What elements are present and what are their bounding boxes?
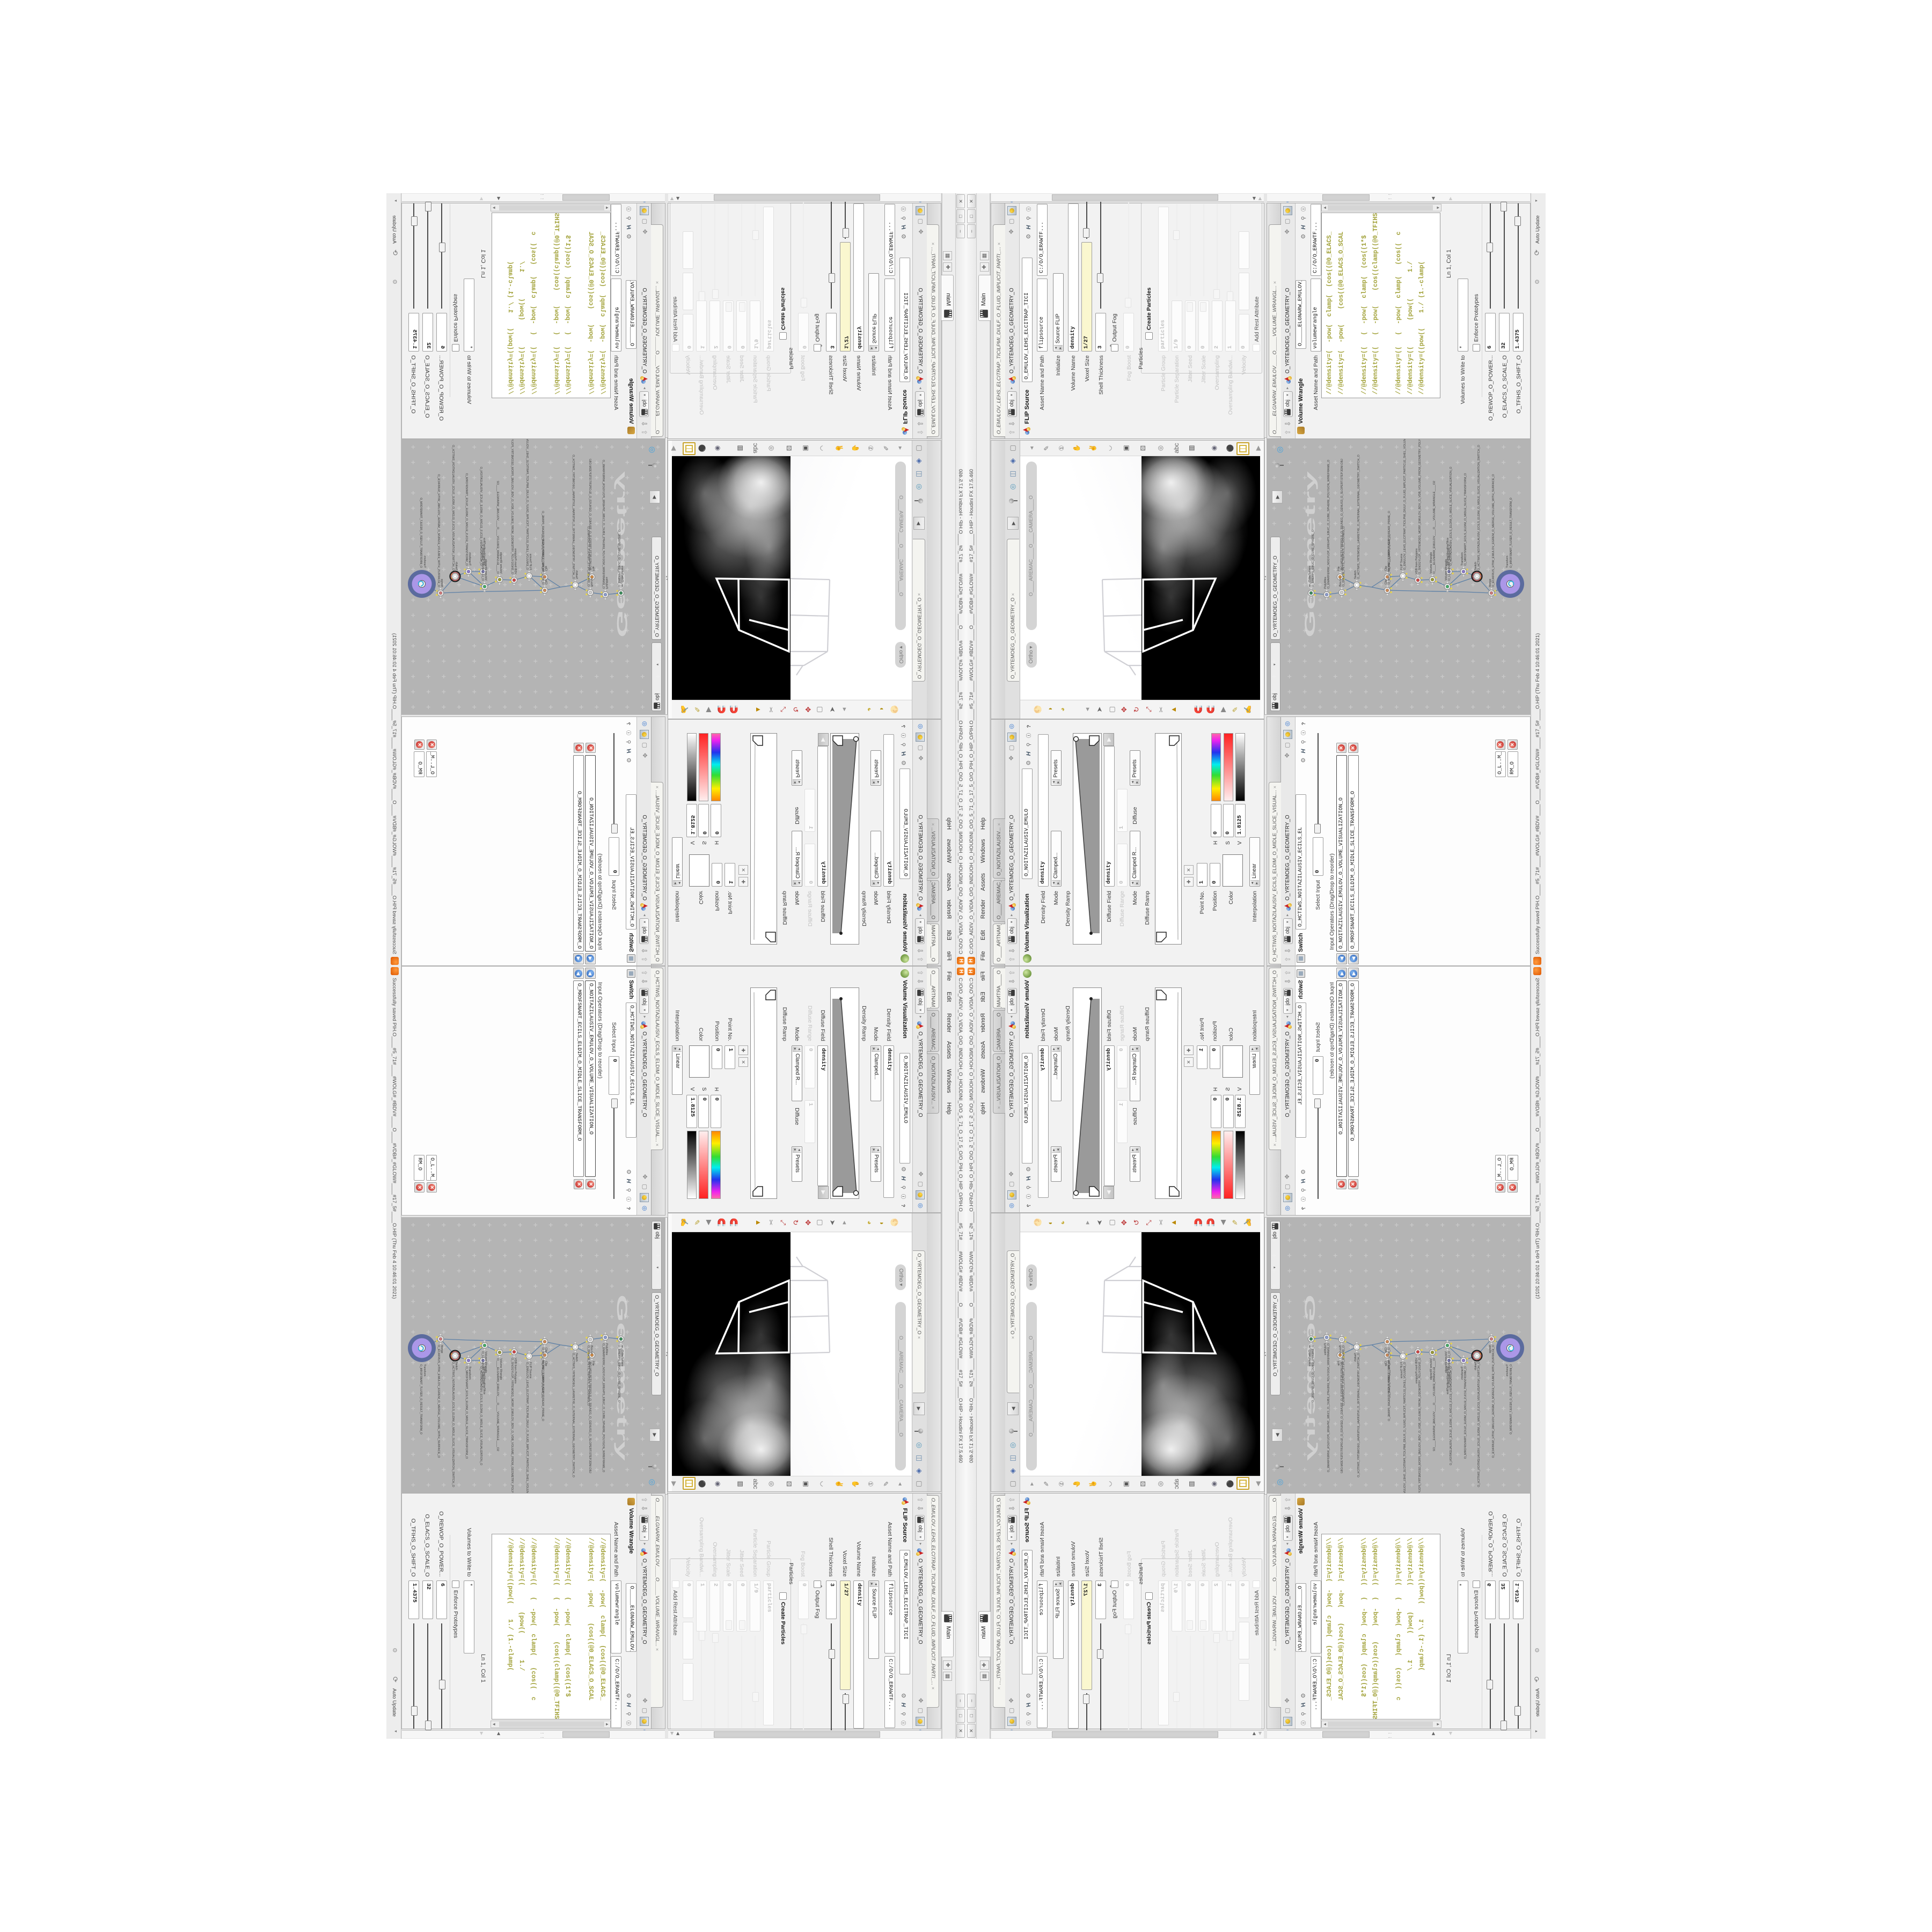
svg-text:O_ELGNARW_EMULOV_2: O_ELGNARW_EMULOV_2 [1448, 545, 1451, 581]
svg-text:O____ELGNARW_EMULOV____O____VO: O____ELGNARW_EMULOV____O____VOLUME_WRANG… [1433, 481, 1436, 574]
svg-text:O_ECAFRUS_HTIW_EMULOV_EGREM_O_: O_ECAFRUS_HTIW_EMULOV_EGREM_O_MERGE_VOLU… [437, 474, 440, 587]
svg-text:O_DNUOB_PETS_TIEPOLS_O_SOUNEG_: O_DNUOB_PETS_TIEPOLS_O_SOUNEG_O [587, 526, 590, 587]
svg-text:O_HCTIWS_NOITAZILAUSIV_ECILS_E: O_HCTIWS_NOITAZILAUSIV_ECILS_ELDIM_O_MID… [451, 444, 455, 570]
svg-text:O_EMULOV_LEHS_ELCITRAP_TICILPM: O_EMULOV_LEHS_ELCITRAP_TICILPMI_DIULF_O_… [525, 437, 529, 570]
svg-text:Geometry: Geometry [614, 1294, 630, 1461]
svg-text:O_EMULOV_LEHS_ELCITRAP_TICILPM: O_EMULOV_LEHS_ELCITRAP_TICILPMI_DIULF_O_… [1403, 437, 1407, 570]
svg-text:Geometry: Geometry [614, 471, 630, 638]
svg-text:O_SNOGYLOP_YRTEMOEG_MORF_EMULO: O_SNOGYLOP_YRTEMOEG_MORF_EMULOV_BDV_O_VD… [1418, 437, 1422, 574]
svg-text:O_PILC_TNORF_O_FRONT_CLIP_O: O_PILC_TNORF_O_FRONT_CLIP_O [541, 534, 544, 584]
svg-text:O_HCTIWS_YRTEMOEG_LANRETXE_O_I: O_HCTIWS_YRTEMOEG_LANRETXE_O_INTERNAL_EX… [1357, 1353, 1360, 1477]
svg-text:O_EMARFERIW_NOGYLOP_EREHPS_EBU: O_EMARFERIW_NOGYLOP_EREHPS_EBUC_O_CUBE_S… [602, 1343, 605, 1473]
svg-text:O_ECAFRUS_HTIW_EMULOV_EGREM_O_: O_ECAFRUS_HTIW_EMULOV_EGREM_O_MERGE_VOLU… [1492, 1345, 1495, 1458]
svg-text:O_PILC_TNORF_O_FRONT_CLIP_O: O_PILC_TNORF_O_FRONT_CLIP_O [1388, 534, 1391, 584]
svg-text:O_HCTIWS_NOITAZILAUSIV_ECILS_E: O_HCTIWS_NOITAZILAUSIV_ECILS_ELDIM_O_MID… [451, 1362, 455, 1488]
svg-text:O_DNUOB_PETS_TIEPOLS_O_SOUNEG_: O_DNUOB_PETS_TIEPOLS_O_SOUNEG_O [1342, 526, 1345, 587]
svg-text:O_EMARFERIW_NOGYLOP_EREHPS_EBU: O_EMARFERIW_NOGYLOP_EREHPS_EBUC_O_CUBE_S… [1327, 1343, 1330, 1473]
svg-text:O_MROFSNART_ECILS_ELDIM_O_MIDL: O_MROFSNART_ECILS_ELDIM_O_MIDLE_SLICE_TR… [1464, 1366, 1467, 1459]
svg-text:O_ECAFRUS_HTIW_EMULOV_EGREM_O_: O_ECAFRUS_HTIW_EMULOV_EGREM_O_MERGE_VOLU… [437, 1345, 440, 1458]
svg-text:O_MROFSNART_TLUSER_O_RESULT_TR: O_MROFSNART_TLUSER_O_RESULT_TRANSFORM_O [1510, 497, 1513, 568]
svg-text:Transform: Transform [1506, 1364, 1509, 1377]
svg-text:O____ELGNARW_EMULOV____O____VO: O____ELGNARW_EMULOV____O____VOLUME_WRANG… [1433, 1358, 1436, 1451]
svg-text:O____ELGNARW_EMULOV____O____VO: O____ELGNARW_EMULOV____O____VOLUME_WRANG… [496, 1358, 499, 1451]
svg-text:O_HCTIWS_NOITAZILAUSIV_ECILS_E: O_HCTIWS_NOITAZILAUSIV_ECILS_ELDIM_O_MID… [1477, 444, 1481, 570]
svg-text:Transform: Transform [423, 1364, 426, 1377]
svg-text:O_EREHPS_EBUC_O_CUBE_SPHERE_O: O_EREHPS_EBUC_O_CUBE_SPHERE_O [617, 529, 620, 587]
svg-text:O_SNOGYLOP_YRTEMOEG_MORF_EMULO: O_SNOGYLOP_YRTEMOEG_MORF_EMULOV_BDV_O_VD… [510, 437, 514, 574]
svg-text:O_EMULOV_LEHS_ELCITRAP_TICILPM: O_EMULOV_LEHS_ELCITRAP_TICILPMI_DIULF_O_… [1403, 1362, 1407, 1495]
svg-text:O_ELGNARW_EMULOV_2: O_ELGNARW_EMULOV_2 [481, 545, 484, 581]
svg-text:Transform: Transform [1506, 555, 1509, 568]
svg-text:O_EREHPS_EBUC_O_CUBE_SPHERE_O: O_EREHPS_EBUC_O_CUBE_SPHERE_O [1312, 1345, 1315, 1403]
svg-text:O_ELGNARW_EMULOV_2: O_ELGNARW_EMULOV_2 [481, 1351, 484, 1387]
svg-text:O_MROFSNART_ECILS_ELDIM_O_MIDL: O_MROFSNART_ECILS_ELDIM_O_MIDLE_SLICE_TR… [1464, 473, 1467, 566]
svg-text:O_MROFSNART_TLUSER_O_RESULT_TR: O_MROFSNART_TLUSER_O_RESULT_TRANSFORM_O [1510, 1364, 1513, 1435]
svg-text:O_PILC_TNORF_O_FRONT_CLIP_O: O_PILC_TNORF_O_FRONT_CLIP_O [541, 1348, 544, 1398]
svg-text:O_EREHPS_EBUC_O_CUBE_SPHERE_O: O_EREHPS_EBUC_O_CUBE_SPHERE_O [617, 1345, 620, 1403]
svg-text:Geometry: Geometry [1302, 1294, 1318, 1461]
svg-text:O_EMARFERIW_NOGYLOP_EREHPS_EBU: O_EMARFERIW_NOGYLOP_EREHPS_EBUC_O_CUBE_S… [1327, 459, 1330, 589]
svg-text:O_DNUOB_PETS_TIEPOLS_O_SOUNEG_: O_DNUOB_PETS_TIEPOLS_O_SOUNEG_O [587, 1345, 590, 1406]
svg-text:O_ECAFRUS_HTIW_EMULOV_EGREM_O_: O_ECAFRUS_HTIW_EMULOV_EGREM_O_MERGE_VOLU… [1492, 474, 1495, 587]
svg-text:O_EMARFERIW_NOGYLOP_EREHPS_EBU: O_EMARFERIW_NOGYLOP_EREHPS_EBUC_O_CUBE_S… [602, 459, 605, 589]
svg-text:O_SNOGYLOP_YRTEMOEG_MORF_EMULO: O_SNOGYLOP_YRTEMOEG_MORF_EMULOV_BDV_O_VD… [1418, 1358, 1422, 1495]
svg-text:O_ELGNARW_EMULOV_2: O_ELGNARW_EMULOV_2 [1448, 1351, 1451, 1387]
svg-text:O_HCTIWS_NOITAZILAUSIV_ECILS_E: O_HCTIWS_NOITAZILAUSIV_ECILS_ELDIM_O_MID… [1477, 1362, 1481, 1488]
svg-text:O_EREHPS_EBUC_O_CUBE_SPHERE_O: O_EREHPS_EBUC_O_CUBE_SPHERE_O [1312, 529, 1315, 587]
svg-text:O_HCTIWS_YRTEMOEG_LANRETXE_O_I: O_HCTIWS_YRTEMOEG_LANRETXE_O_INTERNAL_EX… [572, 455, 575, 579]
svg-text:O_MROFSNART_TLUSER_O_RESULT_TR: O_MROFSNART_TLUSER_O_RESULT_TRANSFORM_O [419, 497, 422, 568]
svg-text:O_MROFSNART_ECILS_ELDIM_O_MIDL: O_MROFSNART_ECILS_ELDIM_O_MIDLE_SLICE_TR… [465, 1366, 468, 1459]
svg-text:O_HCTIWS_YRTEMOEG_LANRETXE_O_I: O_HCTIWS_YRTEMOEG_LANRETXE_O_INTERNAL_EX… [572, 1353, 575, 1477]
svg-text:O_SNOGYLOP_YRTEMOEG_MORF_EMULO: O_SNOGYLOP_YRTEMOEG_MORF_EMULOV_BDV_O_VD… [510, 1358, 514, 1495]
svg-text:O_EMULOV_LEHS_ELCITRAP_TICILPM: O_EMULOV_LEHS_ELCITRAP_TICILPMI_DIULF_O_… [525, 1362, 529, 1495]
svg-text:Geometry: Geometry [1302, 471, 1318, 638]
svg-text:O_MROFSNART_ECILS_ELDIM_O_MIDL: O_MROFSNART_ECILS_ELDIM_O_MIDLE_SLICE_TR… [465, 473, 468, 566]
svg-text:O_HCTIWS_YRTEMOEG_LANRETXE_O_I: O_HCTIWS_YRTEMOEG_LANRETXE_O_INTERNAL_EX… [1357, 455, 1360, 579]
svg-text:Transform: Transform [423, 555, 426, 568]
svg-text:O_PILC_TNORF_O_FRONT_CLIP_O: O_PILC_TNORF_O_FRONT_CLIP_O [1388, 1348, 1391, 1398]
svg-text:O_MROFSNART_TLUSER_O_RESULT_TR: O_MROFSNART_TLUSER_O_RESULT_TRANSFORM_O [419, 1364, 422, 1435]
svg-text:O_DNUOB_PETS_TIEPOLS_O_SOUNEG_: O_DNUOB_PETS_TIEPOLS_O_SOUNEG_O [1342, 1345, 1345, 1406]
svg-text:O____ELGNARW_EMULOV____O____VO: O____ELGNARW_EMULOV____O____VOLUME_WRANG… [496, 481, 499, 574]
